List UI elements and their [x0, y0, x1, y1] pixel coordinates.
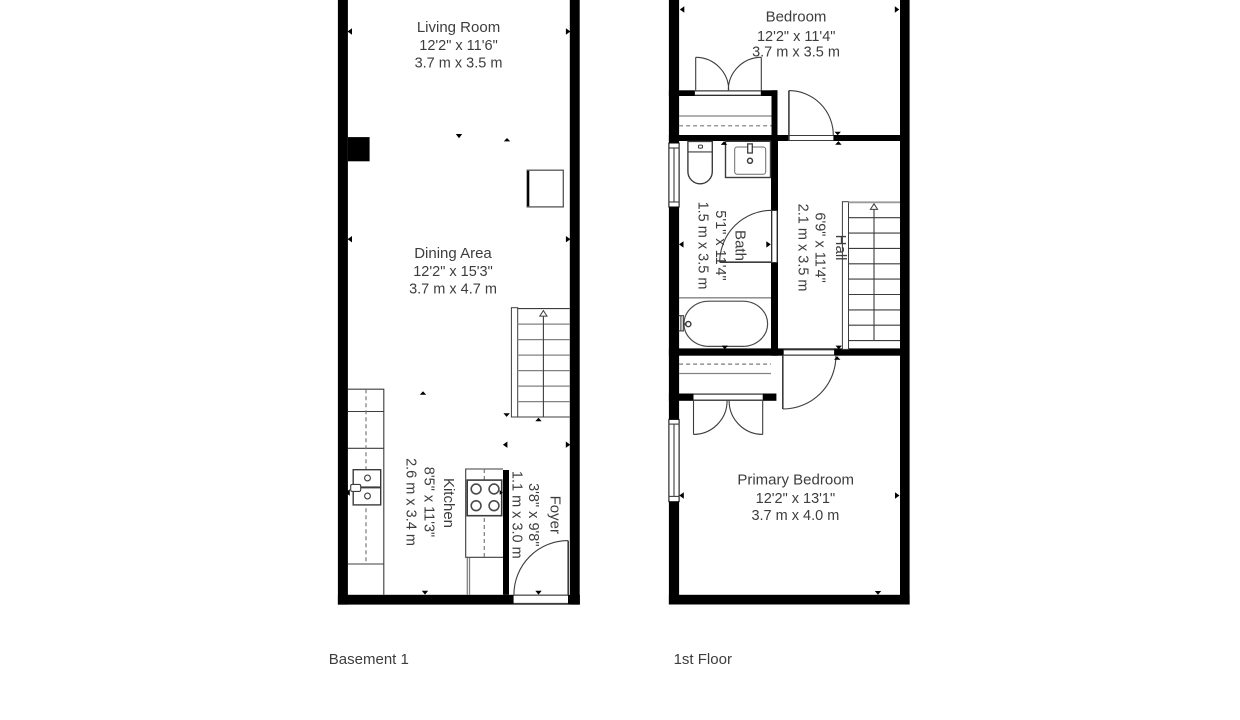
- svg-text:3.7 m x 3.5 m: 3.7 m x 3.5 m: [752, 45, 840, 61]
- svg-text:8'5" x 11'3": 8'5" x 11'3": [420, 467, 436, 537]
- svg-text:12'2" x 11'6": 12'2" x 11'6": [419, 38, 497, 54]
- svg-text:12'2" x 11'4": 12'2" x 11'4": [757, 29, 835, 45]
- svg-text:1st Floor: 1st Floor: [674, 651, 732, 668]
- svg-text:Hall: Hall: [832, 235, 849, 261]
- svg-text:Kitchen: Kitchen: [440, 478, 457, 528]
- svg-text:2.6 m x 3.4 m: 2.6 m x 3.4 m: [402, 458, 418, 546]
- svg-text:2.1 m x 3.5 m: 2.1 m x 3.5 m: [795, 204, 811, 292]
- svg-text:Basement 1: Basement 1: [329, 651, 409, 668]
- svg-text:5'1" x 11'4": 5'1" x 11'4": [712, 210, 728, 280]
- svg-text:3.7 m x 4.0 m: 3.7 m x 4.0 m: [751, 508, 839, 524]
- svg-text:12'2" x 13'1": 12'2" x 13'1": [756, 491, 836, 507]
- svg-text:12'2" x 15'3": 12'2" x 15'3": [413, 264, 493, 280]
- svg-text:6'9" x 11'4": 6'9" x 11'4": [812, 212, 828, 282]
- svg-text:3.7 m x 4.7 m: 3.7 m x 4.7 m: [409, 282, 497, 298]
- svg-text:Living Room: Living Room: [417, 19, 500, 36]
- svg-text:Foyer: Foyer: [547, 496, 564, 534]
- svg-text:Dining Area: Dining Area: [414, 245, 492, 262]
- svg-text:3.7 m x 3.5 m: 3.7 m x 3.5 m: [415, 56, 503, 72]
- svg-text:Bath: Bath: [731, 230, 748, 261]
- svg-text:1.5 m x 3.5 m: 1.5 m x 3.5 m: [694, 202, 710, 290]
- svg-text:Primary Bedroom: Primary Bedroom: [737, 472, 854, 489]
- svg-text:1.1 m x 3.0 m: 1.1 m x 3.0 m: [509, 471, 525, 559]
- svg-text:Bedroom: Bedroom: [766, 9, 827, 26]
- svg-text:3'8" x 9'8": 3'8" x 9'8": [525, 483, 541, 546]
